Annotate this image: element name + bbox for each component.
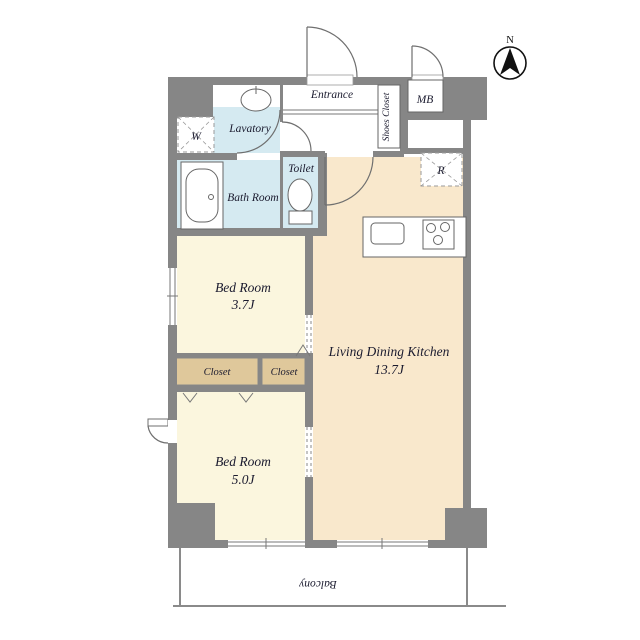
entrance-door: [307, 27, 357, 85]
bedroom2-name-label: Bed Room: [215, 454, 271, 469]
washer-label: W: [191, 131, 202, 143]
bedroom2-window-leaf: [148, 419, 168, 426]
shoes-closet-label: Shoes Closet: [382, 92, 392, 141]
north-arrow-needle: [500, 48, 520, 75]
bedroom1-size-label: 3.7J: [231, 297, 256, 312]
closet-right-label: Closet: [271, 367, 299, 378]
bathtub-area: [181, 162, 223, 229]
bathroom-label: Bath Room: [227, 192, 278, 204]
lavatory-label: Lavatory: [228, 123, 271, 135]
toilet-fixtures: [288, 179, 312, 224]
toilet-bowl: [288, 179, 312, 211]
bathroom-fixtures: [181, 162, 223, 229]
closet-left-label: Closet: [204, 367, 232, 378]
balcony-label: Balcony: [298, 578, 337, 590]
bedroom2-size-label: 5.0J: [232, 472, 256, 487]
floor-plan-page: N Entrance Shoes Closet MB Lavatory W Ba…: [0, 0, 640, 640]
fridge-label: R: [436, 165, 444, 177]
balcony: [173, 548, 506, 606]
floor-plan-drawing: N Entrance Shoes Closet MB Lavatory W Ba…: [0, 0, 640, 640]
north-arrow: N: [494, 35, 526, 79]
toilet-label: Toilet: [288, 163, 315, 175]
toilet-tank: [289, 211, 312, 224]
entrance-label: Entrance: [310, 89, 353, 101]
meter-box-label: MB: [416, 94, 434, 106]
ldk-name-label: Living Dining Kitchen: [328, 344, 450, 359]
bedroom1-name-label: Bed Room: [215, 280, 271, 295]
lavatory-door-arc: [282, 122, 311, 151]
north-label: N: [506, 35, 514, 46]
bedroom2-window-arc: [148, 426, 168, 443]
meter-box-door: [412, 46, 443, 85]
ldk-size-label: 13.7J: [374, 362, 405, 377]
